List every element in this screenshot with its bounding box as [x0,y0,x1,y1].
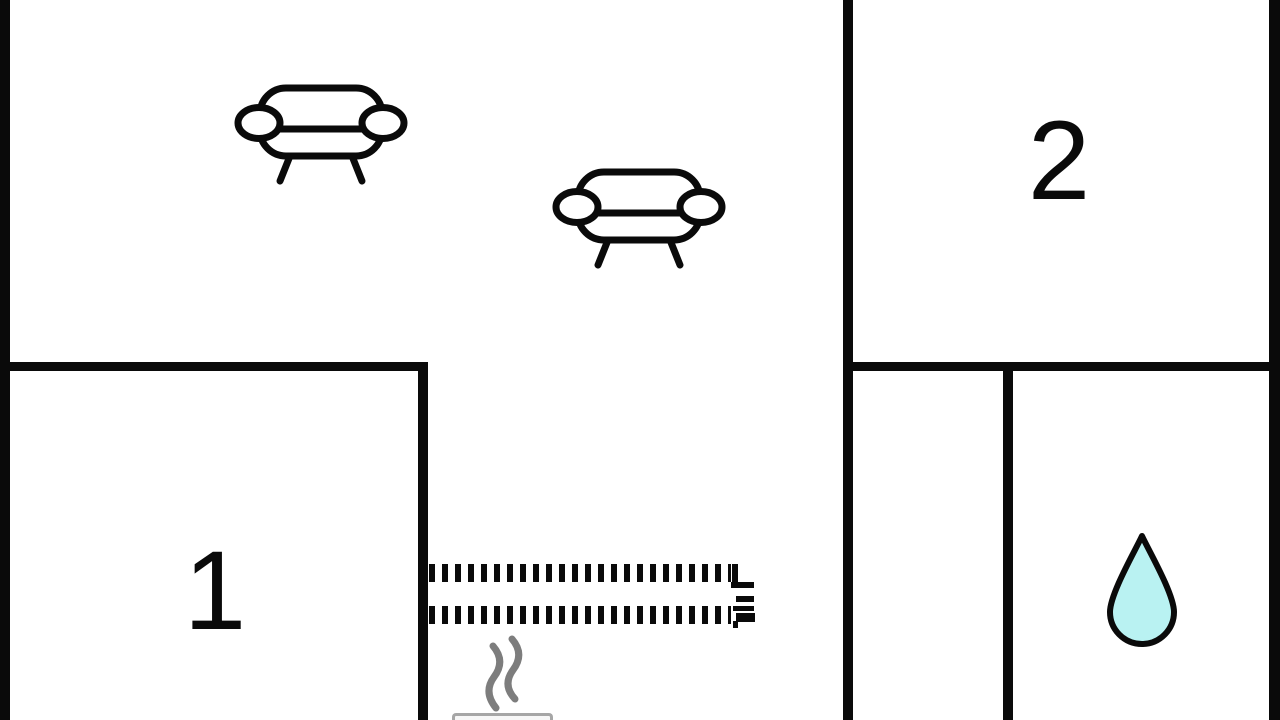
partition-end-tick-top [732,564,738,582]
room-1-label: 1 [145,528,285,654]
dashed-row-bottom [429,606,731,624]
wall-room1-top [0,362,428,371]
sofa-icon [235,84,407,186]
wall-center-vertical [843,0,853,720]
floor-plan: 1 2 [0,0,1280,720]
room-2-label: 2 [989,98,1129,224]
steam-icon [478,634,526,718]
sofa-icon [553,168,725,270]
wall-room1-right [418,362,428,720]
partition-end-bar-low1 [733,606,754,611]
wall-bathroom-left [1003,362,1013,720]
partition-end-bar-low2 [736,613,755,622]
partition-end-tick-low [733,621,738,628]
wall-left [0,0,10,720]
wall-right [1269,0,1280,720]
partition-end-bar-top [731,582,754,588]
partition-end-bar-mid [736,596,754,602]
stove-icon [452,713,553,720]
dashed-row-top [429,564,731,582]
water-drop-icon [1102,530,1182,652]
wall-room2-bottom [843,362,1280,371]
